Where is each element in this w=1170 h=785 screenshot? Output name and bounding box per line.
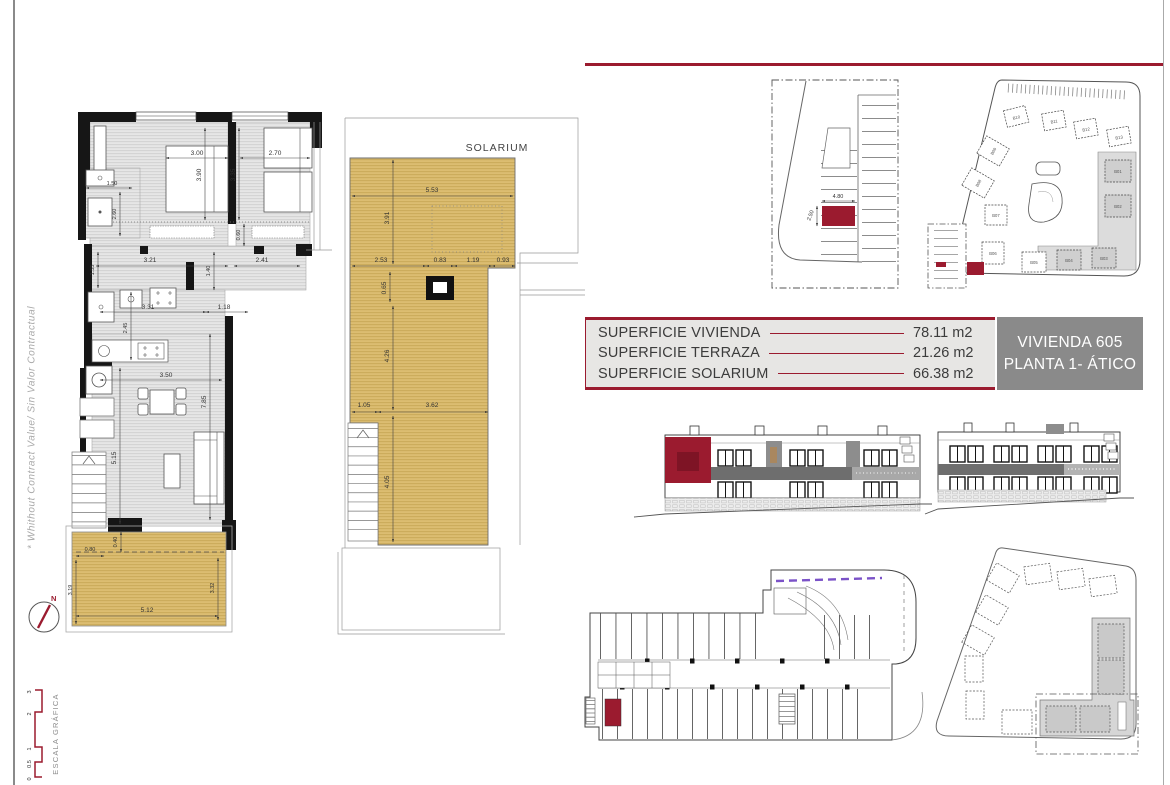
dim-label: 1.50 bbox=[107, 181, 118, 187]
dim-label: 4.80 bbox=[833, 194, 844, 200]
dim-label: 3.32 bbox=[210, 583, 216, 594]
row-value: 21.26 m2 bbox=[913, 345, 985, 361]
road-curve bbox=[892, 692, 923, 740]
site-plan-bottom bbox=[920, 535, 1170, 785]
dim-label: 3.91 bbox=[384, 211, 391, 224]
storage-grid bbox=[598, 662, 670, 688]
leader-line bbox=[770, 333, 904, 334]
building-label: B07 bbox=[992, 213, 1000, 218]
pool-slot bbox=[1118, 702, 1126, 730]
dim-label: 2.53 bbox=[375, 257, 388, 264]
dim-label: 1.18 bbox=[218, 304, 231, 311]
right-elevation bbox=[925, 423, 1134, 514]
dim-label: 4.26 bbox=[384, 349, 391, 362]
dim-label: 3.50 bbox=[160, 372, 173, 379]
row-value: 66.38 m2 bbox=[913, 366, 985, 382]
contract-disclaimer-note: * Whithout Contract Value/ Sin Valor Con… bbox=[27, 268, 38, 588]
dim-label: 7.85 bbox=[201, 395, 208, 408]
dim-label: 2.70 bbox=[269, 150, 282, 157]
dim-label: 1.05 bbox=[358, 402, 371, 409]
highlighted-parking-site bbox=[936, 262, 946, 267]
building-label: B05 bbox=[1030, 260, 1038, 265]
dim-label: 0.40 bbox=[113, 537, 119, 548]
building-label: B06 bbox=[989, 251, 997, 256]
dim-label: 4.05 bbox=[384, 475, 391, 488]
garage-outline bbox=[585, 570, 916, 740]
row-value: 78.11 m2 bbox=[913, 325, 985, 341]
dim-label: 5.15 bbox=[111, 451, 118, 464]
dim-label: 0.60 bbox=[236, 230, 242, 241]
dim-label: 0.65 bbox=[381, 281, 388, 294]
roof-box bbox=[1046, 424, 1064, 434]
scale-bar bbox=[35, 690, 42, 777]
balcony-band bbox=[938, 464, 1064, 475]
dim-label: 2.60 bbox=[112, 209, 118, 220]
scale-title: ESCALA GRÁFICA bbox=[51, 693, 60, 774]
stair-door bbox=[770, 447, 777, 463]
highlighted-unit-window bbox=[677, 452, 699, 471]
building-label: B03 bbox=[1100, 256, 1108, 261]
dim-label: 0.83 bbox=[434, 257, 447, 264]
header-separator-line bbox=[585, 63, 1163, 66]
interior-stairs bbox=[72, 452, 106, 528]
building-label: B02 bbox=[1114, 204, 1122, 209]
highlighted-parking-space bbox=[822, 206, 855, 226]
scale-tick: 3 bbox=[27, 690, 33, 693]
compass: N bbox=[20, 590, 70, 640]
balcony-rail-light bbox=[852, 467, 920, 480]
table-row: SUPERFICIE TERRAZA 21.26 m2 bbox=[598, 345, 985, 361]
dim-label: 1.55 bbox=[90, 265, 96, 276]
leader-line bbox=[778, 373, 904, 374]
dim-label: 1.40 bbox=[206, 266, 212, 277]
dim-label: 3.00 bbox=[191, 150, 204, 157]
parking-boundary bbox=[772, 80, 898, 288]
apartment-floor-plan: 3.00 3.90 2.70 3.35 1.50 2.60 0.60 3.21 … bbox=[55, 100, 345, 650]
skylight bbox=[426, 276, 454, 300]
unit-number: VIVIENDA 605 bbox=[1017, 332, 1122, 354]
scale-tick: 0.5 bbox=[27, 760, 33, 768]
scale-tick: 2 bbox=[27, 712, 33, 715]
mini-parking-strip bbox=[928, 224, 966, 288]
dim-label: 3.31 bbox=[142, 304, 155, 311]
leader-line bbox=[769, 353, 904, 354]
dim-label: 2.45 bbox=[123, 323, 129, 334]
site-plan-top: B10 B11 B12 B13 B09 B08 B07 B06 B05 B04 … bbox=[920, 70, 1170, 305]
dim-label: 3.35 bbox=[230, 168, 237, 181]
sheet-left-border bbox=[13, 0, 15, 785]
building-label: B01 bbox=[1114, 169, 1122, 174]
highlighted-garage-space bbox=[605, 699, 621, 726]
scale-tick: 1 bbox=[27, 747, 33, 750]
chimneys bbox=[690, 426, 887, 435]
area-summary-table: SUPERFICIE VIVIENDA 78.11 m2 SUPERFICIE … bbox=[585, 317, 995, 390]
dim-label: 3.62 bbox=[426, 402, 439, 409]
plan-sheet: * Whithout Contract Value/ Sin Valor Con… bbox=[0, 0, 1170, 785]
unit-floor: PLANTA 1- ÁTICO bbox=[1004, 354, 1137, 376]
building-label: B04 bbox=[1065, 258, 1073, 263]
solarium-stairs bbox=[348, 423, 378, 541]
compass-needle bbox=[38, 605, 50, 628]
unit-label-box: VIVIENDA 605 PLANTA 1- ÁTICO bbox=[997, 317, 1143, 390]
garage-plan bbox=[575, 555, 930, 765]
north-label: N bbox=[51, 594, 56, 603]
highlighted-unit-site bbox=[967, 262, 984, 275]
dim-label: 3.21 bbox=[144, 257, 157, 264]
row-label: SUPERFICIE TERRAZA bbox=[598, 345, 760, 361]
lower-windows bbox=[718, 482, 897, 498]
table-row: SUPERFICIE VIVIENDA 78.11 m2 bbox=[598, 325, 985, 341]
table-row: SUPERFICIE SOLARIUM 66.38 m2 bbox=[598, 366, 985, 382]
dim-label: 1.19 bbox=[467, 257, 480, 264]
dim-label: 2.41 bbox=[256, 257, 269, 264]
scale-tick: 0 bbox=[27, 777, 33, 780]
dim-label: 0.80 bbox=[85, 547, 96, 553]
left-elevation bbox=[634, 426, 932, 517]
dim-label: 0.93 bbox=[497, 257, 510, 264]
solarium-plan: SOLARIUM 5.53 3.91 2.53 0.83 1.19 0.93 0… bbox=[330, 105, 600, 650]
graphic-scale: 3 2 1 0.5 0 ESCALA GRÁFICA bbox=[22, 683, 82, 783]
solarium-title: SOLARIUM bbox=[466, 142, 529, 154]
row-label: SUPERFICIE VIVIENDA bbox=[598, 325, 761, 341]
dim-label: 3.90 bbox=[196, 168, 203, 181]
upper-windows bbox=[718, 450, 897, 466]
dim-label: 5.53 bbox=[426, 187, 439, 194]
stair-tower bbox=[846, 441, 860, 471]
dim-label: 5.12 bbox=[141, 607, 154, 614]
parking-detail-plan: 4.80 2.50 bbox=[765, 72, 905, 300]
row-label: SUPERFICIE SOLARIUM bbox=[598, 366, 769, 382]
